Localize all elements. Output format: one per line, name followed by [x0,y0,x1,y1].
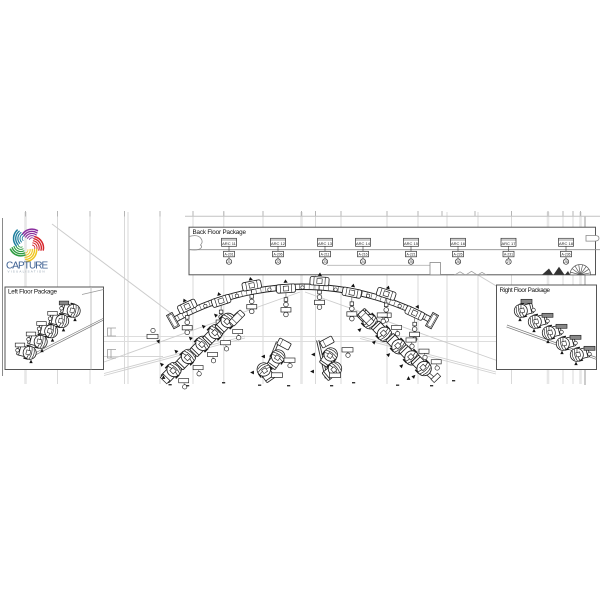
svg-text:A-201: A-201 [224,253,233,257]
svg-text:A-206: A-206 [273,253,282,257]
svg-text:ARC 16: ARC 16 [451,241,466,246]
svg-text:27: 27 [507,260,511,264]
svg-text:A-216: A-216 [358,253,367,257]
svg-text:Back Floor Package: Back Floor Package [193,229,247,236]
svg-text:ARC 15: ARC 15 [404,241,419,246]
svg-text:A-221: A-221 [406,253,415,257]
svg-text:A-226: A-226 [453,253,462,257]
svg-text:21: 21 [227,260,231,264]
svg-text:28: 28 [564,260,568,264]
svg-text:A-231: A-231 [504,253,513,257]
svg-text:23: 23 [323,260,327,264]
svg-text:A-236: A-236 [561,253,570,257]
svg-text:ARC 14: ARC 14 [356,241,371,246]
svg-text:26: 26 [456,260,460,264]
svg-text:Left Floor Package: Left Floor Package [8,289,57,296]
svg-text:A-211: A-211 [321,253,330,257]
svg-text:25: 25 [409,260,413,264]
svg-text:Right Floor Package: Right Floor Package [500,287,551,294]
svg-text:ARC 18: ARC 18 [559,241,574,246]
svg-text:22: 22 [276,260,280,264]
svg-text:ARC 13: ARC 13 [318,241,333,246]
svg-text:VISUALISATION: VISUALISATION [8,269,46,273]
svg-text:ARC 11: ARC 11 [222,241,236,246]
svg-text:24: 24 [361,260,365,264]
svg-text:ARC 17: ARC 17 [501,241,516,246]
svg-text:ARC 12: ARC 12 [271,241,286,246]
